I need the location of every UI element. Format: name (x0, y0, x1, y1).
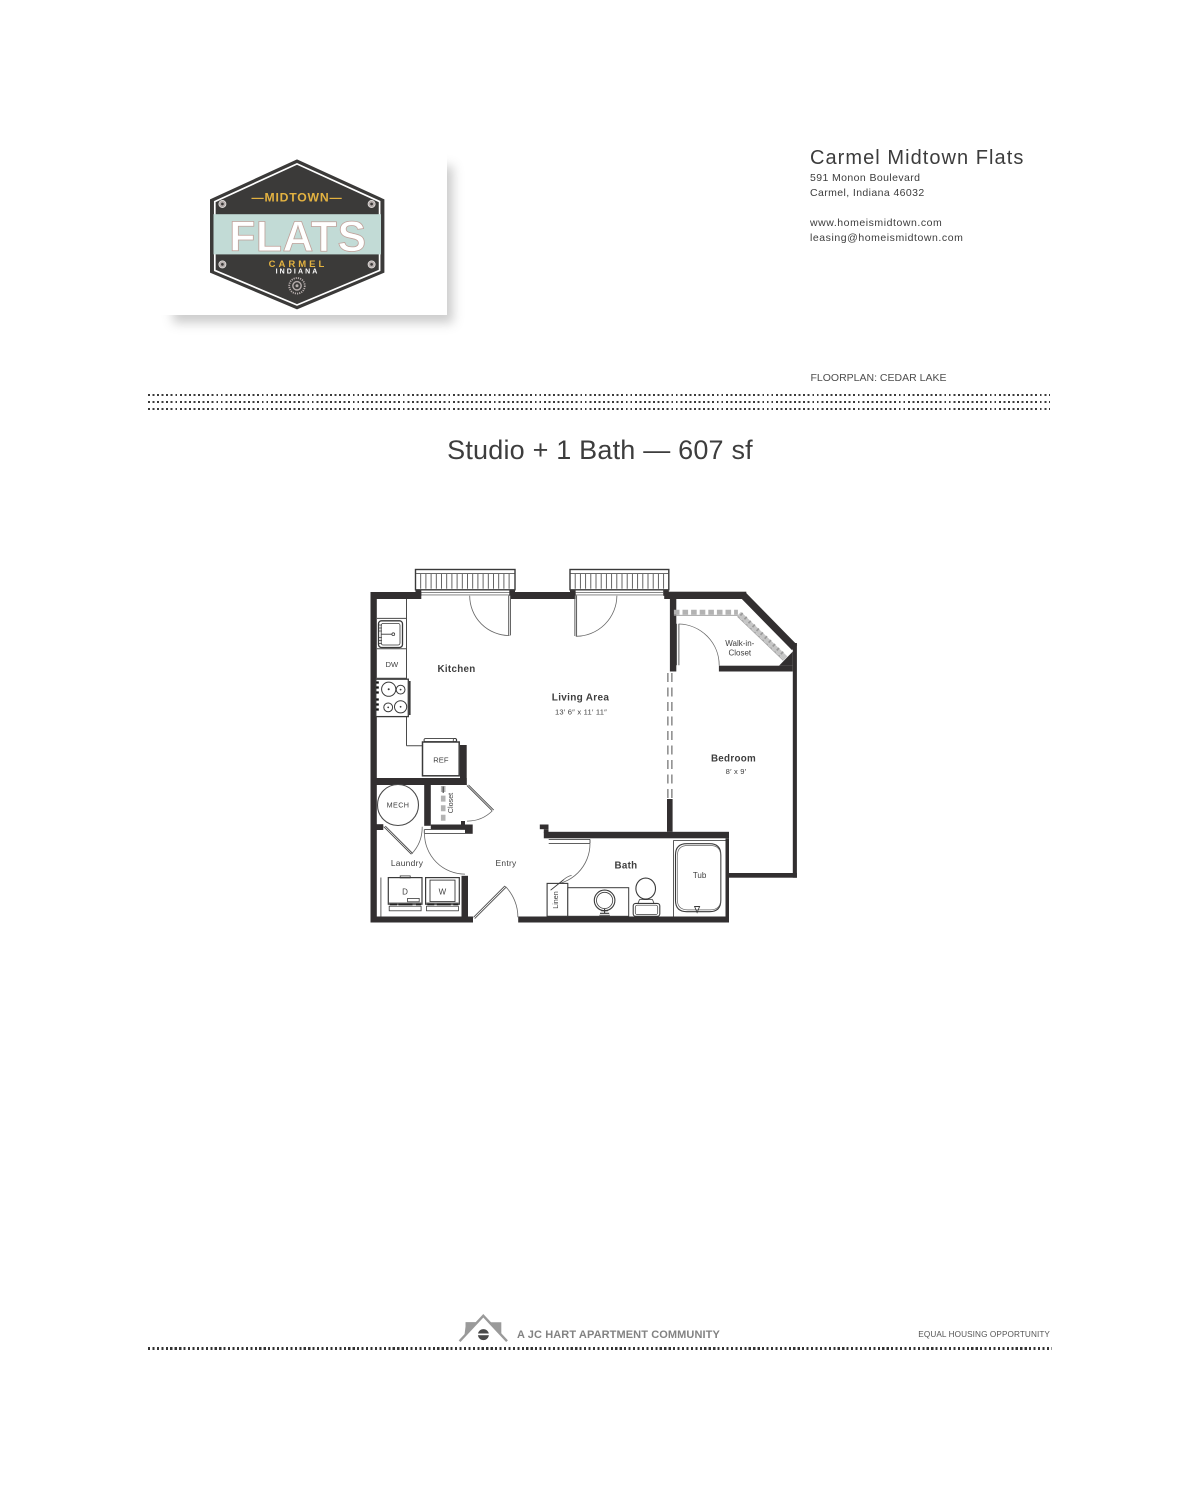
svg-text:Living Area: Living Area (552, 692, 610, 703)
svg-text:Closet: Closet (446, 793, 455, 813)
svg-text:MECH: MECH (387, 801, 410, 810)
svg-text:REF: REF (433, 755, 449, 764)
svg-text:—MIDTOWN—: —MIDTOWN— (252, 191, 343, 205)
svg-text:W: W (439, 888, 447, 897)
svg-text:Bath: Bath (615, 860, 638, 871)
svg-text:Laundry: Laundry (391, 858, 424, 868)
svg-text:Closet: Closet (728, 648, 751, 657)
svg-text:Walk-in-: Walk-in- (725, 639, 754, 648)
svg-text:13′ 6″ x 11′ 11″: 13′ 6″ x 11′ 11″ (555, 707, 607, 716)
svg-text:8′ x 9′: 8′ x 9′ (726, 767, 747, 776)
svg-text:Linen: Linen (551, 891, 560, 909)
svg-text:D: D (402, 888, 408, 897)
svg-text:Tub: Tub (693, 871, 707, 880)
svg-text:INDIANA: INDIANA (276, 269, 320, 276)
svg-text:Kitchen: Kitchen (437, 664, 475, 675)
svg-text:Bedroom: Bedroom (711, 753, 756, 764)
svg-text:Entry: Entry (495, 858, 517, 868)
svg-text:FLATS: FLATS (229, 214, 366, 261)
svg-text:DW: DW (385, 660, 398, 669)
